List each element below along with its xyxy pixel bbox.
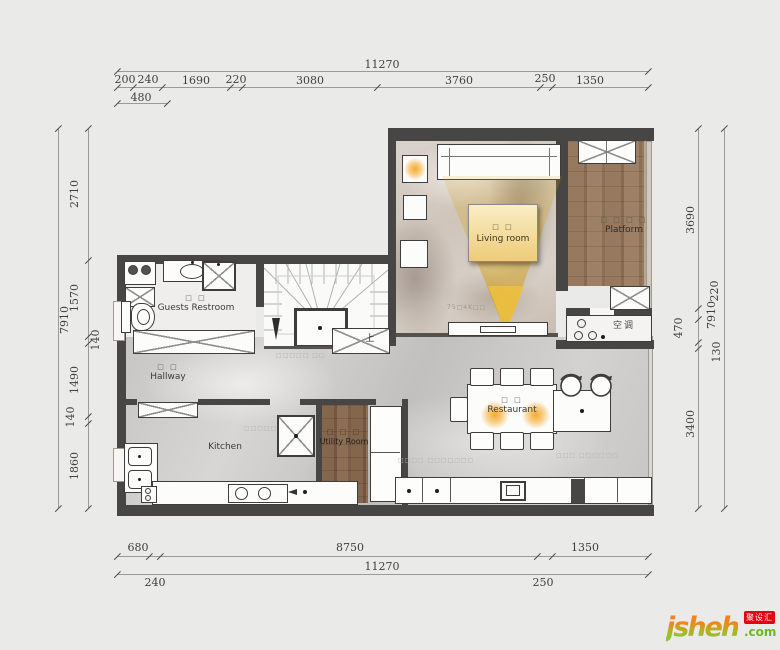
wall-kitchen-top-b	[198, 399, 270, 405]
restroom-cabinet-row	[133, 330, 255, 354]
hallway-label: Hallway	[142, 372, 194, 383]
bottom-counter-cell-4	[617, 478, 650, 502]
restroom-basin-2	[141, 265, 151, 275]
sink-tap-dot-2	[138, 478, 141, 481]
dim-top-seg-2: 1690	[174, 74, 218, 87]
dim-top-seg-6: 250	[523, 72, 567, 85]
counter-dot-1	[407, 489, 411, 493]
dim-bottom-sub-1: 250	[521, 576, 565, 589]
utility-label-block: □ □ □ Utility Room	[316, 428, 372, 447]
kitchen-top-cabinet	[138, 402, 198, 418]
restroom-label: Guests Restroom	[150, 303, 242, 314]
chair-left	[450, 397, 468, 422]
ceiling-light-glow	[404, 158, 426, 180]
restaurant-label: Restaurant	[472, 405, 552, 416]
dim-line-bottom-chain	[117, 556, 648, 557]
dim-bottom-seg-1: 8750	[328, 541, 372, 554]
dim-top-sub: 480	[119, 91, 163, 104]
shower-drain-dot	[217, 263, 220, 266]
stair-direction-arrow-icon	[272, 318, 280, 340]
platform-cjk: □ □ □ □	[592, 216, 656, 225]
platform-lower-cabinet	[610, 286, 650, 310]
living-room-cjk: □ □	[492, 223, 513, 231]
shelf-box-2	[403, 195, 427, 220]
counter-dark-block	[571, 479, 585, 503]
restroom-label-block: □ □ Guests Restroom	[150, 294, 242, 314]
dim-right-seg-4: 3400	[684, 402, 696, 446]
wall-living-left	[388, 141, 396, 346]
tv-screen	[480, 326, 516, 333]
faint-note-1: □□□□□	[244, 425, 277, 432]
living-room-label: Living room	[477, 234, 530, 244]
wall-kitchen-top-a	[117, 399, 137, 405]
ac-label-block: 空调	[604, 321, 644, 332]
restroom-basin-1	[128, 265, 138, 275]
wall-bottom	[117, 505, 654, 516]
chair-bottom-1	[470, 432, 494, 450]
dim-left-seg-1: 1570	[68, 276, 80, 320]
wall-restroom-stairs	[256, 255, 264, 307]
kitchen-label-block: Kitchen	[197, 442, 253, 453]
dim-top-seg-5: 3760	[437, 74, 481, 87]
dim-right-seg-0: 3690	[684, 198, 696, 242]
ac-unit-circle-3	[588, 331, 597, 340]
ac-unit-dot	[601, 335, 605, 339]
platform-cabinet-hatch	[578, 140, 636, 164]
vanity-basin	[180, 264, 204, 279]
stair-column-dot	[318, 326, 322, 330]
restroom-cjk: □ □	[150, 294, 242, 303]
vanity-faucet-dot	[191, 261, 194, 264]
dim-bottom-seg-2: 1350	[563, 541, 607, 554]
restaurant-cjk: □ □	[472, 396, 552, 405]
platform-cabinet-divider	[606, 141, 607, 163]
hallway-cjk: □ □	[142, 363, 194, 372]
sofa-seat-line	[441, 156, 557, 157]
utility-label: Utility Room	[316, 437, 372, 447]
toilet-bowl-inner	[137, 309, 150, 325]
sink-tap-dot-1	[138, 455, 141, 458]
stove-burner-1	[235, 487, 248, 500]
ac-unit-circle-1	[577, 319, 586, 328]
bar-counter-dot	[580, 409, 584, 413]
dim-top-seg-3: 220	[214, 73, 258, 86]
wall-left-section-top	[117, 255, 390, 264]
counter-sink-inner	[506, 485, 520, 496]
watermark: jsheh 聚设汇 .com	[666, 610, 780, 650]
bottom-counter-cell-3	[584, 478, 617, 502]
dim-top-total: 11270	[360, 58, 404, 71]
floor-plan: □ □ Living room 75□4K□□ □ □ □ □ Platform…	[0, 0, 780, 650]
watermark-brand: jsheh	[666, 612, 738, 643]
bar-stool-1	[558, 370, 584, 398]
kitchen-floor-dot	[303, 490, 307, 494]
restaurant-label-block: □ □ Restaurant	[472, 396, 552, 416]
dim-top-seg-7: 1350	[568, 74, 612, 87]
dim-line-bottom-total	[117, 574, 648, 575]
kitchen-label: Kitchen	[197, 442, 253, 453]
faint-note-0: □□□□□ □□	[276, 352, 326, 359]
utility-cabinet-cell-1	[371, 407, 400, 453]
living-room-label-box: □ □ Living room	[468, 204, 538, 262]
chair-top-2	[500, 368, 524, 386]
chair-bottom-2	[500, 432, 524, 450]
appliance-circle-2	[145, 495, 151, 501]
appliance-circle-1	[145, 488, 151, 494]
counter-dot-2	[435, 489, 439, 493]
dim-left-seg-0: 2710	[68, 172, 80, 216]
chair-top-1	[470, 368, 494, 386]
tv-note: 75□4K□□	[447, 304, 486, 311]
watermark-tld: .com	[744, 625, 776, 639]
stairs-up-label: 上	[360, 334, 380, 345]
ac-label: 空调	[604, 321, 644, 332]
dim-line-top-chain	[117, 87, 648, 88]
dim-bottom-seg-0: 680	[116, 541, 160, 554]
dim-right-seg-2: 470	[672, 306, 684, 350]
dim-left-seg-5: 1860	[68, 444, 80, 488]
utility-cjk: □ □ □	[316, 428, 372, 437]
faint-note-2: □□□□ □□□□□□□	[398, 457, 474, 464]
bar-stool-2	[588, 370, 614, 398]
dim-right-total: 7910	[705, 293, 717, 337]
chair-top-3	[530, 368, 554, 386]
platform-label-block: □ □ □ □ Platform	[592, 216, 656, 236]
shelf-box-3	[400, 240, 428, 268]
toilet-tank	[121, 301, 131, 333]
dim-bottom-total: 11270	[360, 560, 404, 573]
kitchen-island-dot	[294, 434, 298, 438]
chair-bottom-3	[530, 432, 554, 450]
stairs-up-block: 上	[360, 334, 380, 345]
door-swing-arrow-icon	[288, 489, 297, 495]
dim-bottom-sub-0: 240	[133, 576, 177, 589]
wall-utility-top	[316, 399, 376, 405]
hallway-label-block: □ □ Hallway	[142, 363, 194, 383]
dim-line-right-total	[724, 128, 725, 508]
ac-unit-circle-2	[574, 331, 583, 340]
dim-line-top-total	[117, 71, 648, 72]
dim-top-seg-4: 3080	[288, 74, 332, 87]
watermark-badge: 聚设汇	[744, 611, 775, 624]
faint-note-3: □□□ □□□□□□	[556, 452, 619, 459]
platform-label: Platform	[592, 225, 656, 236]
stove-burner-2	[258, 487, 271, 500]
dim-left-seg-4: 140	[64, 395, 76, 439]
